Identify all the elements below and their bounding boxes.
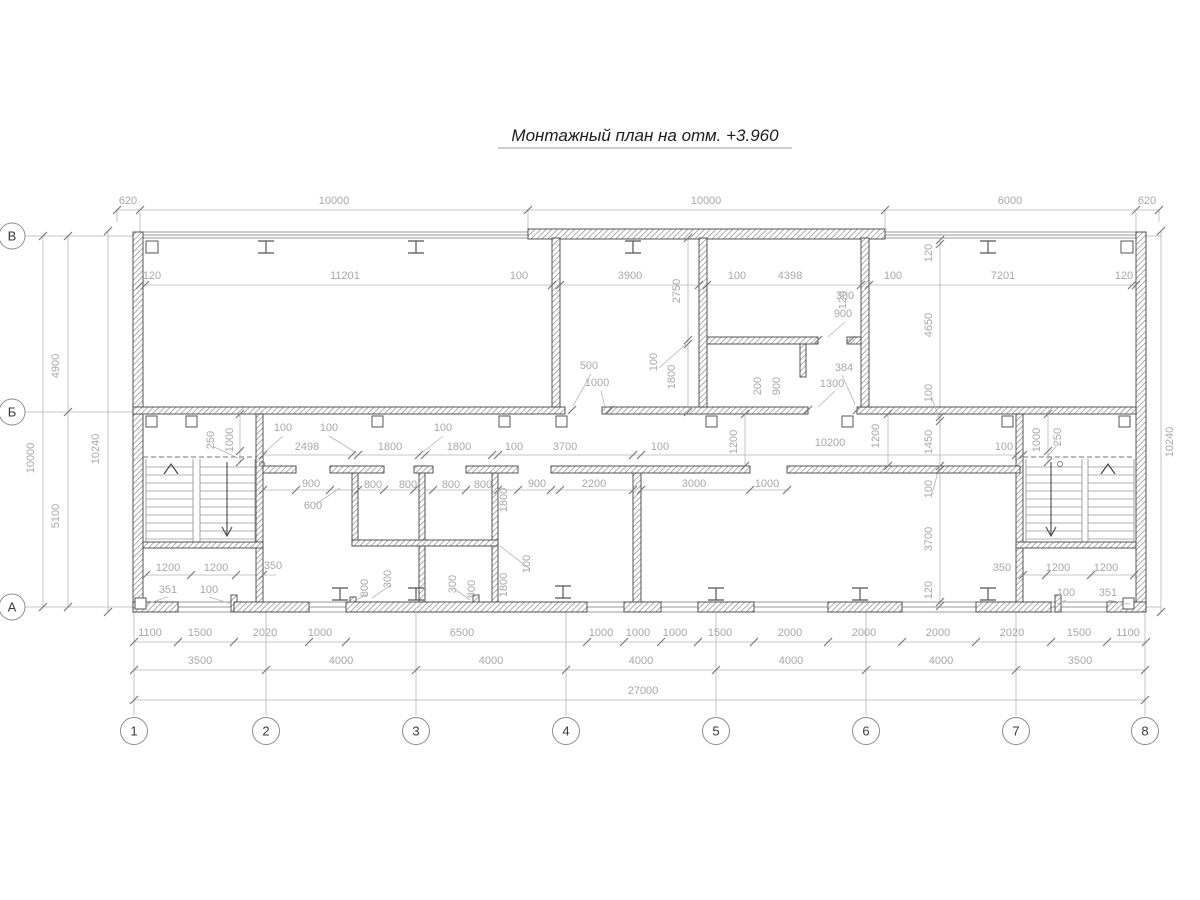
wall-segment bbox=[602, 407, 808, 414]
dimension-label: 1000 bbox=[663, 627, 687, 639]
wall-segment bbox=[624, 602, 661, 612]
dimension-label: 800 bbox=[399, 479, 417, 491]
dimension-label: 800 bbox=[466, 580, 478, 598]
dimension-label: 350 bbox=[993, 562, 1011, 574]
wall-segment bbox=[552, 238, 560, 407]
stair-up-arrow-icon bbox=[1101, 464, 1115, 474]
stair-marker-circle bbox=[1058, 462, 1063, 467]
dimension-label: 1000 bbox=[308, 627, 332, 639]
dimension-label: 900 bbox=[834, 308, 852, 320]
wall-segment bbox=[633, 466, 641, 612]
wall-segment bbox=[234, 602, 309, 612]
dimension-label: 600 bbox=[304, 500, 322, 512]
leader-line bbox=[209, 597, 232, 604]
dimension-label: 100 bbox=[200, 584, 218, 596]
wall-segment bbox=[698, 602, 754, 612]
dimension-label: 1000 bbox=[585, 377, 609, 389]
wall-segment bbox=[352, 466, 358, 546]
dimension-label: 11201 bbox=[330, 270, 360, 282]
dimension-label: 100 bbox=[648, 353, 660, 371]
dimension-label: 2498 bbox=[295, 441, 319, 453]
leader-line bbox=[265, 436, 283, 452]
dimension-label: 2200 bbox=[582, 478, 606, 490]
dimension-label: 1000 bbox=[224, 428, 236, 452]
column-mark bbox=[706, 416, 717, 427]
wall-segment bbox=[352, 540, 498, 546]
dimension-label: 2750 bbox=[671, 279, 683, 303]
ibeam-column-icon bbox=[258, 241, 274, 253]
column-mark bbox=[1119, 416, 1130, 427]
wall-segment bbox=[800, 344, 806, 377]
wall-segment bbox=[466, 466, 518, 473]
wall-segment bbox=[414, 466, 433, 473]
wall-segment bbox=[787, 466, 1020, 473]
dimension-label: 3900 bbox=[618, 270, 642, 282]
dimension-label: 1000 bbox=[626, 627, 650, 639]
leader-line bbox=[659, 344, 686, 368]
dimension-label: 4000 bbox=[929, 655, 953, 667]
dimension-label: 1000 bbox=[1031, 428, 1043, 452]
column-mark bbox=[186, 416, 197, 427]
dimension-label: 6500 bbox=[450, 627, 474, 639]
grid-bubble-label: 4 bbox=[562, 724, 569, 739]
leader-line bbox=[818, 391, 835, 407]
dimension-label: 7201 bbox=[991, 270, 1015, 282]
dimension-label: 500 bbox=[580, 360, 598, 372]
dimension-label: 100 bbox=[728, 270, 746, 282]
column-mark bbox=[135, 598, 146, 609]
grid-bubble-label: 6 bbox=[862, 724, 869, 739]
leader-line bbox=[601, 391, 605, 407]
dimension-label: 1500 bbox=[1067, 627, 1091, 639]
floor-plan-page: 6201000010000600062012011201100390010043… bbox=[0, 0, 1200, 900]
grid-bubble-label: 8 bbox=[1141, 724, 1148, 739]
dimension-label: 10240 bbox=[1164, 427, 1176, 458]
dimension-label: 300 bbox=[382, 570, 394, 588]
dimension-label: 4000 bbox=[629, 655, 653, 667]
tick-mark bbox=[568, 406, 576, 414]
dimension-label: 10000 bbox=[691, 195, 722, 207]
dimension-label: 120 bbox=[923, 581, 935, 599]
dimension-label: 351 bbox=[159, 584, 177, 596]
leader-line bbox=[423, 436, 443, 452]
floor-plan-drawing: 6201000010000600062012011201100390010043… bbox=[0, 0, 1200, 900]
dimension-label: 1000 bbox=[589, 627, 613, 639]
column-mark bbox=[556, 416, 567, 427]
dimension-label: 10200 bbox=[815, 437, 846, 449]
column-mark bbox=[842, 416, 853, 427]
grid-bubble-label: 5 bbox=[712, 724, 719, 739]
dimension-label: 3000 bbox=[682, 478, 706, 490]
dimension-label: 620 bbox=[1138, 195, 1156, 207]
dimension-label: 1200 bbox=[1094, 562, 1118, 574]
dimension-label: 120 bbox=[923, 244, 935, 262]
ibeam-column-icon bbox=[852, 588, 868, 600]
grid-bubble-label: 3 bbox=[412, 724, 419, 739]
dimension-label: 900 bbox=[528, 478, 546, 490]
dimension-label: 2000 bbox=[926, 627, 950, 639]
dimension-label: 800 bbox=[442, 479, 460, 491]
dimension-label: 1100 bbox=[1116, 627, 1140, 639]
grid-bubble-label: Б bbox=[8, 405, 17, 420]
wall-segment bbox=[857, 407, 1136, 414]
stair-up-arrow-icon bbox=[164, 464, 178, 474]
wall-segment bbox=[330, 466, 384, 473]
dimension-label: 1800 bbox=[666, 365, 678, 389]
dimension-label: 3700 bbox=[553, 441, 577, 453]
wall-segment bbox=[143, 542, 263, 548]
dimension-label: 800 bbox=[474, 479, 492, 491]
leader-line bbox=[329, 436, 355, 452]
wall-segment bbox=[1016, 414, 1023, 612]
dimension-label: 1800 bbox=[498, 488, 510, 512]
dimension-label: 2020 bbox=[1000, 627, 1024, 639]
column-mark bbox=[1121, 241, 1133, 253]
wall-segment bbox=[861, 238, 869, 407]
dimension-label: 800 bbox=[359, 579, 371, 597]
dimension-label: 200 bbox=[752, 377, 764, 395]
dimension-label: 120 bbox=[143, 270, 161, 282]
dimension-label: 10000 bbox=[319, 195, 350, 207]
dimension-label: 1200 bbox=[728, 430, 740, 454]
wall-segment bbox=[976, 602, 1051, 612]
dimension-label: 3700 bbox=[923, 527, 935, 551]
wall-segment bbox=[256, 414, 263, 612]
dimension-label: 1200 bbox=[156, 562, 180, 574]
wall-segment bbox=[847, 337, 861, 344]
dimension-label: 2000 bbox=[778, 627, 802, 639]
grid-bubble-label: 7 bbox=[1012, 724, 1019, 739]
dimension-label: 4650 bbox=[923, 313, 935, 337]
dimension-label: 4398 bbox=[778, 270, 802, 282]
grid-bubble-label: А bbox=[8, 600, 17, 615]
wall-segment bbox=[705, 337, 818, 344]
dimension-label: 10000 bbox=[25, 443, 37, 474]
wall-segment bbox=[346, 602, 587, 612]
dimension-label: 1800 bbox=[378, 441, 402, 453]
dimension-label: 800 bbox=[364, 479, 382, 491]
dimension-label: 1500 bbox=[708, 627, 732, 639]
dimension-label: 1200 bbox=[870, 424, 882, 448]
dimension-label: 384 bbox=[835, 362, 853, 374]
dimension-label: 1500 bbox=[188, 627, 212, 639]
column-mark bbox=[372, 416, 383, 427]
wall-segment bbox=[528, 229, 885, 239]
wall-segment bbox=[1016, 542, 1136, 548]
dimension-label: 27000 bbox=[628, 685, 659, 697]
dimension-label: 350 bbox=[264, 560, 282, 572]
wall-segment bbox=[551, 466, 750, 473]
dimension-label: 3500 bbox=[1068, 655, 1092, 667]
dimension-label: 1300 bbox=[820, 378, 844, 390]
ibeam-column-icon bbox=[980, 241, 996, 253]
dimension-label: 300 bbox=[447, 575, 459, 593]
ibeam-column-icon bbox=[332, 588, 348, 600]
dimension-label: 100 bbox=[923, 480, 935, 498]
dimension-label: 351 bbox=[1099, 587, 1117, 599]
column-mark bbox=[146, 241, 158, 253]
dimension-label: 900 bbox=[771, 377, 783, 395]
dimension-label: 100 bbox=[1057, 587, 1075, 599]
dimension-label: 1800 bbox=[447, 441, 471, 453]
dimension-label: 1200 bbox=[204, 562, 228, 574]
dimension-label: 2000 bbox=[852, 627, 876, 639]
ibeam-column-icon bbox=[980, 588, 996, 600]
grid-bubble-label: 1 bbox=[130, 724, 137, 739]
dimension-label: 6000 bbox=[998, 195, 1022, 207]
dimension-label: 1000 bbox=[755, 478, 779, 490]
dimension-label: 250 bbox=[1052, 428, 1064, 446]
dimension-label: 300 bbox=[836, 290, 854, 302]
wall-segment bbox=[828, 602, 902, 612]
dimension-label: 100 bbox=[510, 270, 528, 282]
dimension-label: 620 bbox=[119, 195, 137, 207]
dimension-label: 250 bbox=[205, 431, 217, 449]
dimension-label: 120 bbox=[1115, 270, 1133, 282]
wall-segment bbox=[699, 238, 707, 407]
dimension-label: 1100 bbox=[138, 627, 162, 639]
dimension-label: 4000 bbox=[479, 655, 503, 667]
dimension-label: 100 bbox=[651, 441, 669, 453]
dimension-label: 100 bbox=[320, 422, 338, 434]
dimension-label: 4900 bbox=[50, 354, 62, 378]
dimension-label: 100 bbox=[923, 384, 935, 402]
dimension-label: 4000 bbox=[329, 655, 353, 667]
dimension-label: 100 bbox=[505, 441, 523, 453]
dimension-label: 100 bbox=[274, 422, 292, 434]
dimension-label: 100 bbox=[884, 270, 902, 282]
dimension-label: 3500 bbox=[188, 655, 212, 667]
grid-bubble-label: В bbox=[8, 229, 17, 244]
wall-segment bbox=[133, 407, 565, 414]
dimension-label: 900 bbox=[302, 478, 320, 490]
dimension-label: 2020 bbox=[253, 627, 277, 639]
ibeam-column-icon bbox=[625, 241, 641, 253]
ibeam-column-icon bbox=[708, 588, 724, 600]
leader-line bbox=[828, 322, 845, 337]
dimension-label: 10240 bbox=[90, 434, 102, 465]
dimension-label: 100 bbox=[521, 555, 533, 573]
dimension-label: 5100 bbox=[50, 504, 62, 528]
wall-segment bbox=[1136, 232, 1146, 612]
column-mark bbox=[146, 416, 157, 427]
dimension-label: 4000 bbox=[779, 655, 803, 667]
drawing-title: Монтажный план на отм. +3.960 bbox=[511, 126, 779, 145]
dimension-label: 1450 bbox=[923, 430, 935, 454]
column-mark bbox=[499, 416, 510, 427]
ibeam-column-icon bbox=[408, 241, 424, 253]
ibeam-column-icon bbox=[555, 586, 571, 598]
dimension-label: 1200 bbox=[1046, 562, 1070, 574]
dimension-label: 100 bbox=[995, 441, 1013, 453]
wall-segment bbox=[419, 466, 425, 612]
wall-segment bbox=[263, 466, 296, 473]
grid-bubble-label: 2 bbox=[262, 724, 269, 739]
dimension-label: 100 bbox=[434, 422, 452, 434]
column-mark bbox=[1002, 416, 1013, 427]
dimension-label: 1800 bbox=[498, 573, 510, 597]
